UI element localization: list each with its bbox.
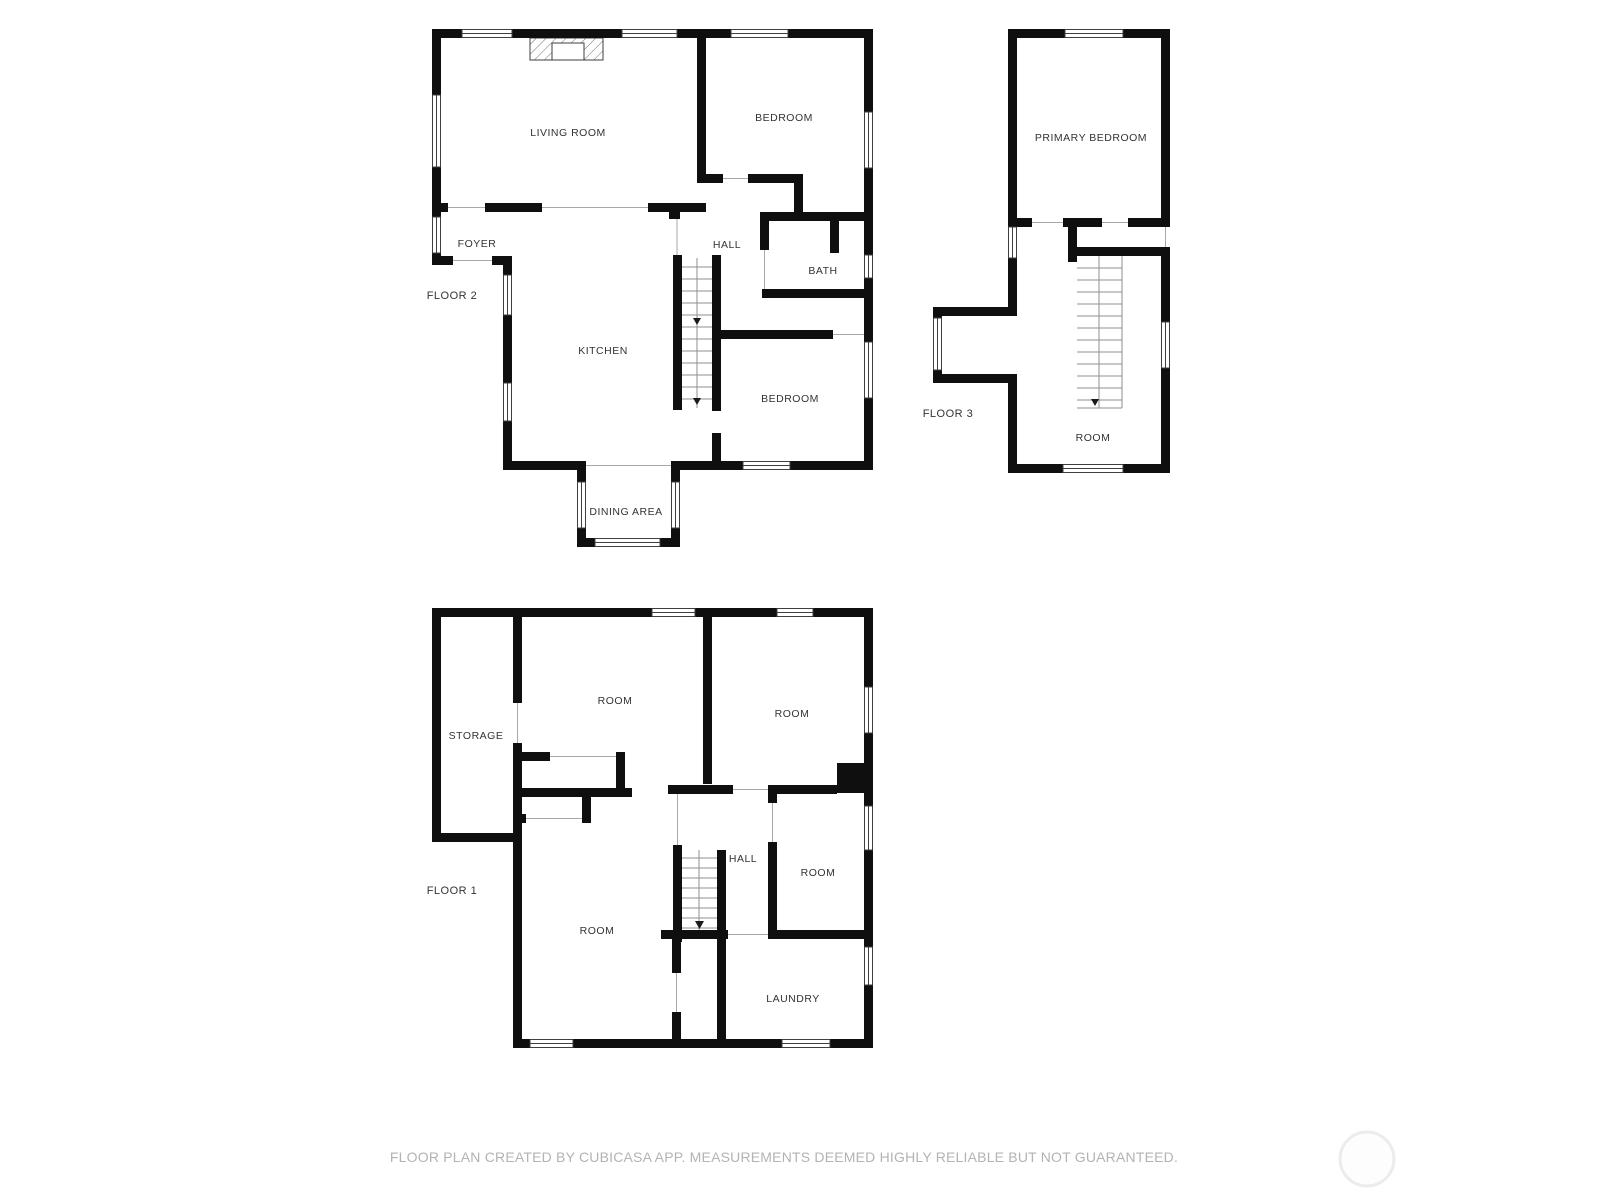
window-icon [433, 95, 441, 167]
room-label-bedroom-top: BEDROOM [755, 112, 813, 124]
window-icon [1063, 465, 1123, 473]
window-icon [433, 217, 441, 253]
window-icon [1162, 322, 1170, 368]
floor1-windows [530, 609, 873, 1048]
window-icon [777, 609, 813, 617]
room-label-room-bottom: ROOM [580, 925, 615, 937]
window-icon [1065, 30, 1123, 38]
window-icon [672, 482, 680, 528]
room-label-primary-bedroom: PRIMARY BEDROOM [1035, 132, 1147, 144]
window-icon [462, 30, 512, 38]
window-icon [504, 275, 512, 315]
floorplan-page: LIVING ROOM BEDROOM FOYER HALL BATH KITC… [0, 0, 1600, 1200]
room-label-room-f3: ROOM [1076, 432, 1111, 444]
window-icon [782, 1040, 830, 1048]
window-icon [731, 30, 788, 38]
room-label-room-top-right: ROOM [775, 708, 810, 720]
window-icon [865, 687, 873, 733]
room-label-kitchen: KITCHEN [578, 345, 628, 357]
window-icon [622, 30, 677, 38]
window-icon [652, 609, 695, 617]
room-label-hall-f2: HALL [713, 239, 741, 251]
window-icon [595, 539, 660, 547]
room-label-bath: BATH [808, 265, 837, 277]
floor-3-label: FLOOR 3 [923, 408, 974, 420]
window-icon [865, 806, 873, 850]
floor-3-plan: PRIMARY BEDROOM ROOM FLOOR 3 [923, 29, 1170, 473]
floor-2-label: FLOOR 2 [427, 290, 478, 302]
room-label-bedroom-bottom: BEDROOM [761, 393, 819, 405]
window-icon [743, 462, 790, 470]
room-label-storage: STORAGE [449, 730, 504, 742]
chimney-block [837, 763, 866, 793]
room-label-room-top: ROOM [598, 695, 633, 707]
watermark-circle [1340, 1132, 1394, 1186]
room-label-foyer: FOYER [458, 238, 497, 250]
window-icon [865, 255, 873, 278]
floor1-stairs-icon [682, 850, 717, 930]
floor2-walls [432, 29, 873, 547]
disclaimer-text: FLOOR PLAN CREATED BY CUBICASA APP. MEAS… [390, 1149, 1178, 1165]
floor3-walls [933, 29, 1170, 473]
floor3-stairs-icon [1077, 256, 1122, 408]
floor2-stairs-icon [682, 258, 712, 408]
window-icon [934, 318, 942, 370]
window-icon [1009, 227, 1017, 258]
window-icon [865, 112, 873, 168]
window-icon [865, 947, 873, 985]
room-label-laundry: LAUNDRY [766, 993, 820, 1005]
room-label-dining-area: DINING AREA [589, 506, 662, 518]
room-label-hall-f1: HALL [729, 853, 757, 865]
fireplace-icon [530, 38, 603, 60]
floor-1-plan: STORAGE ROOM ROOM HALL ROOM ROOM LAUNDRY… [427, 608, 873, 1048]
window-icon [865, 342, 873, 398]
room-label-living-room: LIVING ROOM [530, 127, 606, 139]
floor-1-label: FLOOR 1 [427, 885, 478, 897]
floor-2-plan: LIVING ROOM BEDROOM FOYER HALL BATH KITC… [427, 29, 873, 547]
window-icon [530, 1040, 573, 1048]
floorplan-canvas: LIVING ROOM BEDROOM FOYER HALL BATH KITC… [0, 0, 1600, 1200]
room-label-room-right: ROOM [801, 867, 836, 879]
window-icon [578, 482, 586, 528]
floor1-walls [432, 608, 873, 1048]
window-icon [504, 383, 512, 421]
